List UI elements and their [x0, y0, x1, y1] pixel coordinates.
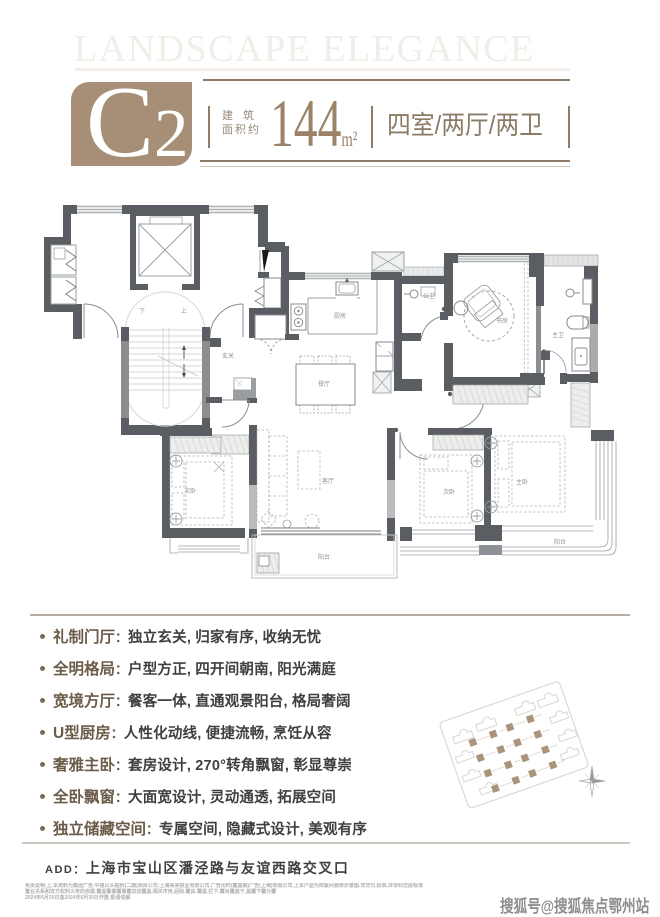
svg-text:次卧: 次卧: [443, 488, 455, 496]
svg-text:上: 上: [181, 307, 187, 315]
svg-text:阳台: 阳台: [554, 538, 566, 546]
svg-text:下: 下: [139, 308, 145, 315]
svg-text:客厅: 客厅: [322, 477, 334, 485]
svg-text:餐厅: 餐厅: [318, 380, 330, 388]
svg-text:主卧: 主卧: [516, 478, 528, 486]
svg-text:阳台: 阳台: [318, 553, 330, 561]
svg-text:公卫: 公卫: [423, 293, 435, 300]
svg-text:玄关: 玄关: [222, 352, 234, 360]
svg-text:厨房: 厨房: [334, 312, 346, 320]
svg-text:书房: 书房: [496, 317, 508, 325]
svg-text:次卧: 次卧: [184, 487, 196, 495]
svg-text:主卫: 主卫: [552, 331, 564, 339]
